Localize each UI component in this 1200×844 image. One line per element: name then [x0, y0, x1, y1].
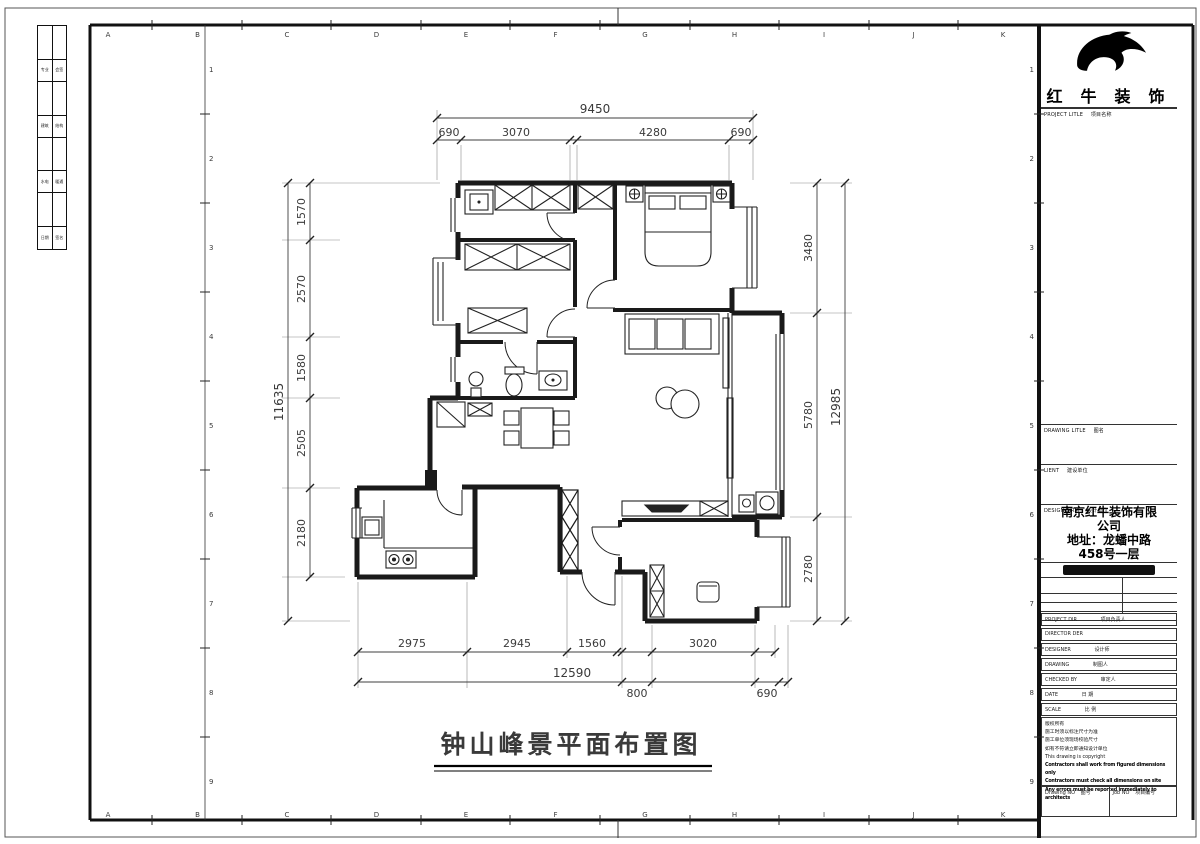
grid-letter: H [732, 811, 737, 819]
wall-pillar [425, 470, 437, 488]
sign-strip-row [38, 26, 66, 60]
dim-right-total: 12985 [829, 388, 843, 426]
fridge [437, 402, 465, 427]
staff-row: DIRECTOR DER [1041, 628, 1177, 641]
nightstand [713, 186, 730, 202]
client-label-zh: 建设单位 [1067, 468, 1088, 474]
duct-shaft [562, 490, 578, 570]
nightstand [626, 186, 643, 202]
grid-letter: B [195, 31, 200, 39]
drawing-title-label-en: DRAWING LITLE [1044, 428, 1086, 434]
staff-label-zh: 审定人 [1101, 677, 1116, 683]
dim-bottom-total: 12590 [553, 666, 591, 680]
dim-bottom-seg: 1560 [578, 637, 606, 650]
dim-right-seg: 5780 [802, 401, 815, 429]
grid-letter: J [911, 811, 914, 819]
staff-label-en: DATE [1045, 692, 1058, 698]
drawing-title-section: DRAWING LITLE 图名 [1041, 425, 1177, 465]
grid-letter: D [374, 31, 379, 39]
sign-strip-cell: 日期 [38, 227, 53, 249]
sign-strip: 专业 会签 建筑 结构 水电 暖通 日期 签名 [37, 25, 67, 250]
grid-letter: F [553, 811, 557, 819]
note-line: 如有不符请立即通知设计单位 [1045, 746, 1176, 754]
plan-svg: A B C D E F G H I J K A B C D E F G H I … [0, 0, 1200, 844]
grid-letter: J [911, 31, 914, 39]
dim-bottom-seg: 2975 [398, 637, 426, 650]
dim-bottom-seg: 3020 [689, 637, 717, 650]
firm-name-line: 公司 [1041, 519, 1177, 533]
staff-label-zh: 制图人 [1093, 662, 1108, 668]
svg-text:2: 2 [209, 155, 213, 163]
window-balcony [776, 334, 784, 490]
grid-letter: K [1001, 811, 1006, 819]
kitchen-counter [362, 500, 473, 548]
window-bath-left [451, 357, 455, 382]
job-no-label-en: Job NO [1113, 790, 1130, 796]
svg-text:1: 1 [209, 66, 213, 74]
staff-row: PROJECT DIR 项目负责人 [1041, 613, 1177, 626]
sign-strip-row [38, 193, 66, 227]
sign-strip-row [38, 138, 66, 172]
sign-strip-cell: 专业 [38, 60, 53, 81]
window-room1-left [451, 198, 455, 232]
staff-row: DESIGNER 设计师 [1041, 643, 1177, 656]
notes-section: 版权所有 施工时须以标注尺寸为准 施工单位须现场校验尺寸 如有不符请立即通知设计… [1041, 717, 1177, 786]
grid-letter: B [195, 811, 200, 819]
door-kitchen [437, 490, 462, 515]
sign-strip-cell: 暖通 [53, 171, 67, 192]
brand-name: 红牛装饰 [1041, 83, 1188, 107]
grid-letters-top: A B C D E F G H I J K [106, 31, 1006, 39]
dim-top-seg: 4280 [639, 126, 667, 139]
sign-strip-row: 专业 会签 [38, 60, 66, 82]
round-table [656, 387, 699, 418]
bay-window-bedroom2 [757, 537, 790, 607]
note-line: 施工时须以标注尺寸为准 [1045, 729, 1176, 737]
floor-plan: 9450 690 3070 4280 690 11635 1570 2570 1… [272, 102, 852, 771]
svg-text:9: 9 [1030, 778, 1034, 786]
grid-letter: I [823, 31, 825, 39]
grid-letter: E [464, 31, 468, 39]
grid-letter: F [553, 31, 557, 39]
number-row: Drawing NO 图号 Job NO 项目编号 [1041, 786, 1177, 817]
sign-strip-row: 水电 暖通 [38, 171, 66, 193]
dim-bottom-seg: 2945 [503, 637, 531, 650]
brand-logo-icon [1069, 29, 1151, 83]
windows [352, 198, 790, 607]
dim-right-seg: 3480 [802, 234, 815, 262]
client-label-en: LIENT [1044, 468, 1059, 474]
door-room1 [547, 213, 575, 241]
redacted-text-bar [1063, 565, 1155, 575]
svg-text:1: 1 [1030, 66, 1034, 74]
balcony-sink [739, 495, 754, 512]
staff-label-zh: 比 例 [1085, 707, 1097, 713]
grid-letter: C [285, 811, 290, 819]
wardrobe-room2 [465, 244, 570, 270]
master-bed [645, 186, 711, 266]
svg-text:4: 4 [1030, 333, 1035, 341]
mini-table [1041, 578, 1177, 613]
svg-text:7: 7 [1030, 600, 1034, 608]
note-line: This drawing is copyright [1045, 754, 1176, 762]
svg-text:5: 5 [1030, 422, 1034, 430]
pedestal-sink [469, 372, 483, 397]
dim-bottom-offset: 800 [627, 687, 648, 700]
plan-title: 钟山峰景平面布置图 [440, 730, 701, 759]
sofa [625, 314, 719, 354]
cabinet-room2 [468, 308, 527, 333]
staff-label-en: SCALE [1045, 707, 1061, 713]
title-block: 红牛装饰 PROJECT LITLE 项目名称 DRAWING LITLE 图名… [1041, 25, 1177, 838]
sign-strip-cell: 水电 [38, 171, 53, 192]
project-title-section: PROJECT LITLE 项目名称 [1041, 108, 1177, 425]
tv-cabinet [622, 501, 728, 516]
dim-top-seg: 690 [439, 126, 460, 139]
side-numbers-left: 1 2 3 4 5 6 7 8 9 [209, 66, 214, 786]
sign-strip-row: 日期 签名 [38, 227, 66, 249]
staff-label-en: DRAWING [1045, 662, 1069, 668]
grid-letter: G [642, 811, 647, 819]
plan-title-group: 钟山峰景平面布置图 [434, 730, 712, 771]
wardrobe-room1 [495, 185, 570, 210]
dim-bottom-offset: 690 [757, 687, 778, 700]
washing-machine [756, 492, 778, 514]
drawing-no-cell: Drawing NO 图号 [1042, 787, 1110, 816]
furniture [362, 185, 778, 617]
grid-letter: A [106, 811, 111, 819]
svg-text:4: 4 [209, 333, 214, 341]
firm-name-line: 南京红牛装饰有限 [1041, 505, 1177, 519]
svg-text:5: 5 [209, 422, 213, 430]
staff-row: SCALE 比 例 [1041, 703, 1177, 716]
sign-strip-cell: 会签 [53, 60, 67, 81]
door-bedroom2 [592, 527, 620, 555]
stool [697, 582, 719, 602]
svg-text:6: 6 [209, 511, 214, 519]
dining-table [504, 408, 569, 448]
sheet-frame [5, 8, 1196, 838]
note-line: Contractors shall work from figured dime… [1045, 762, 1176, 778]
sign-strip-row: 建筑 结构 [38, 116, 66, 138]
dim-left-seg: 2505 [295, 429, 308, 457]
door-room2 [547, 309, 575, 337]
grid-letter: I [823, 811, 825, 819]
svg-text:7: 7 [209, 600, 213, 608]
firm-address-line: 458号一层 [1041, 547, 1177, 561]
dim-left-total: 11635 [272, 383, 286, 421]
dim-left-seg: 2180 [295, 519, 308, 547]
svg-text:2: 2 [1030, 155, 1034, 163]
drawing-title-label-zh: 图名 [1094, 428, 1104, 434]
svg-text:6: 6 [1030, 511, 1035, 519]
staff-label-en: PROJECT DIR [1045, 617, 1077, 623]
staff-label-zh: 日 期 [1082, 692, 1094, 698]
dim-top-seg: 690 [731, 126, 752, 139]
staff-row: CHECKED BY 审定人 [1041, 673, 1177, 686]
staff-label-zh: 设计师 [1095, 647, 1110, 653]
door-entry [582, 572, 615, 605]
project-title-label-en: PROJECT LITLE [1044, 112, 1083, 118]
svg-text:8: 8 [209, 689, 213, 697]
sign-strip-cell: 建筑 [38, 116, 53, 137]
grid-letter: C [285, 31, 290, 39]
bay-window-master [732, 207, 757, 288]
drawing-no-label-zh: 图号 [1081, 790, 1091, 796]
staff-row: DRAWING 制图人 [1041, 658, 1177, 671]
design-firm-section: DESIGN FIRM 设计单位 南京红牛装饰有限 公司 地址：龙蟠中路 458… [1041, 505, 1177, 563]
drawing-sheet: A B C D E F G H I J K A B C D E F G H I … [0, 0, 1200, 844]
dim-right-seg: 2780 [802, 555, 815, 583]
svg-text:9: 9 [209, 778, 213, 786]
hall-closet [578, 185, 613, 209]
dim-left-seg: 1580 [295, 354, 308, 382]
svg-text:3: 3 [209, 244, 213, 252]
sign-strip-cell: 结构 [53, 116, 67, 137]
toilet [505, 367, 524, 396]
sign-strip-row [38, 82, 66, 116]
stove [386, 551, 416, 568]
vanity [539, 371, 567, 390]
note-line: 版权所有 [1045, 721, 1176, 729]
grid-letter: D [374, 811, 379, 819]
grid-letter: E [464, 811, 468, 819]
drawing-no-label-en: Drawing NO [1045, 790, 1075, 796]
dim-left-seg: 2570 [295, 275, 308, 303]
grid-letter: A [106, 31, 111, 39]
bay-window-left [433, 258, 458, 325]
staff-row: DATE 日 期 [1041, 688, 1177, 701]
svg-text:8: 8 [1030, 689, 1034, 697]
basin-cabinet-room1 [465, 190, 493, 214]
job-no-label-zh: 项目编号 [1135, 790, 1155, 796]
job-no-cell: Job NO 项目编号 [1110, 787, 1177, 816]
note-line: 施工单位须现场校验尺寸 [1045, 737, 1176, 745]
firm-address-line: 地址：龙蟠中路 [1041, 533, 1177, 547]
staff-label-zh: 项目负责人 [1101, 617, 1126, 623]
logo-section: 红牛装饰 [1041, 25, 1177, 108]
dim-top-seg: 3070 [502, 126, 530, 139]
dim-left-seg: 1570 [295, 198, 308, 226]
client-section: LIENT 建设单位 [1041, 465, 1177, 505]
dim-top-total: 9450 [580, 102, 611, 116]
redacted-row [1041, 563, 1177, 578]
project-title-label-zh: 项目名称 [1091, 112, 1112, 118]
side-cabinet [468, 403, 492, 416]
grid-letters-bottom: A B C D E F G H I J K [106, 811, 1006, 819]
sign-strip-cell: 签名 [53, 227, 67, 249]
side-numbers-right: 1 2 3 4 5 6 7 8 9 [1030, 66, 1035, 786]
staff-label-en: CHECKED BY [1045, 677, 1077, 683]
grid-letter: H [732, 31, 737, 39]
staff-label-en: DESIGNER [1045, 647, 1071, 653]
svg-text:3: 3 [1030, 244, 1034, 252]
staff-label-en: DIRECTOR DER [1045, 631, 1083, 637]
window-kitchen [352, 508, 362, 538]
grid-letter: G [642, 31, 647, 39]
bedroom2-wardrobe [650, 565, 664, 617]
grid-letter: K [1001, 31, 1006, 39]
door-master [587, 280, 615, 308]
